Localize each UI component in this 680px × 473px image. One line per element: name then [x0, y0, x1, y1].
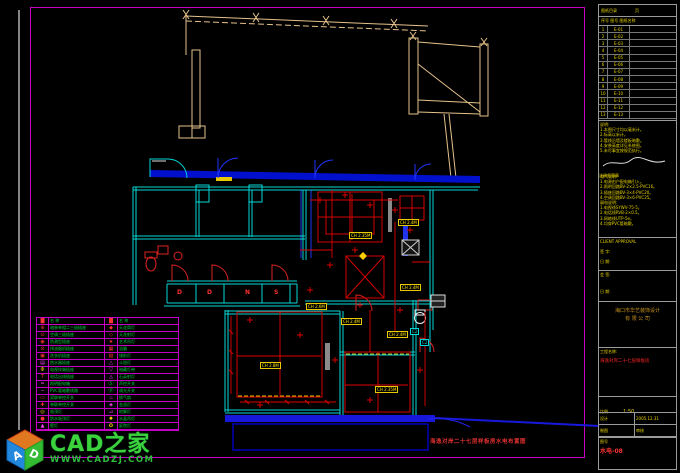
sheet-number: 水电-08 — [600, 446, 675, 455]
rev-col-header: 序号 图号 图纸名称 — [599, 18, 636, 23]
closet-letter: D — [207, 290, 212, 296]
signature-squiggle — [599, 157, 669, 169]
legend-symbol: ═ — [37, 381, 49, 388]
rev-table-row: 12E-12 — [599, 105, 676, 112]
legend-symbol: ◎ — [37, 409, 49, 416]
legend-label: 暗藏灯带 — [118, 367, 178, 374]
cad-canvas: CH 2.35MCH 2.4MCH 2.4MCH 2.8MCH 2.35MCH … — [0, 0, 680, 473]
legend-label: PVC管暗敷线路 — [49, 388, 105, 395]
legend-header-name: 名 称 — [118, 318, 178, 325]
legend-symbol: ⊿ — [105, 409, 118, 416]
sheet-number-box: 图号 水电-08 — [599, 437, 676, 457]
company-name-line2: 有 限 公 司 — [599, 316, 676, 324]
brand-url: WWW.CADZJ.COM — [50, 455, 155, 465]
rev-table-row: 10E-10 — [599, 90, 676, 97]
rev-title: 图纸目录 — [599, 8, 617, 13]
closet-letter: S — [274, 290, 278, 296]
rev-table-row: 7E-07 — [599, 69, 676, 76]
legend-symbol: ▧ — [105, 353, 118, 360]
approval-date-label: 日 期: — [600, 259, 675, 264]
legend-symbol: ▤ — [37, 360, 49, 367]
legend-symbol: ⊕ — [37, 325, 49, 332]
legend-symbol: Φ — [37, 367, 49, 374]
legend-symbol: ⊙ — [37, 332, 49, 339]
notes-block: 说明:1.本图尺寸均以毫米计。2.标高以米计。3.管线沿墙及楼板暗敷。4.安装高… — [599, 120, 676, 154]
legend-label: 斗胆灯 — [118, 360, 178, 367]
legend-label: 热水器插座 — [49, 360, 105, 367]
ceiling-grids — [237, 192, 424, 412]
legend-label: 双联单控开关 — [49, 395, 105, 402]
project-box: 工程名称: 海逸对岸二十七层样板房 — [599, 347, 676, 396]
legend-symbol: ▭ — [37, 395, 49, 402]
ceiling-height-label: CH 2.4M — [398, 219, 419, 226]
legend-symbol: ▽ — [105, 367, 118, 374]
legend-symbol: ⊘ — [37, 346, 49, 353]
legend-label: 金卤灯 — [118, 402, 178, 409]
design-label: 设计 — [599, 413, 635, 425]
ceiling-height-label: CH 2.35M — [375, 386, 398, 393]
legend-label: 换气扇 — [118, 395, 178, 402]
legend-symbol: ◆ — [105, 325, 118, 332]
legend-label: 石英射灯 — [118, 374, 178, 381]
company-box: 海口市华艺装饰设计 有 限 公 司 — [599, 301, 676, 347]
cosign-date-label: 日 期: — [600, 289, 675, 294]
legend-label: 调光开关 — [118, 388, 178, 395]
legend-symbol: ● — [37, 416, 49, 423]
legend-label: 镜前灯 — [118, 353, 178, 360]
ceiling-height-label: CH 2.6M — [306, 303, 327, 310]
signature-block: 注册师签章 — [599, 154, 676, 172]
note-line: 5.未尽事宜按规范执行。 — [600, 148, 675, 153]
legend-label: 吸顶灯 — [49, 409, 105, 416]
legend-symbol: ─ — [37, 388, 49, 395]
logo-text: CAD之家 WWW.CADZJ.COM — [50, 435, 155, 465]
check-label: 审核 — [635, 425, 676, 437]
legend-label: 防水吸顶灯 — [49, 416, 105, 423]
legend-symbol: ♨ — [105, 395, 118, 402]
cosign-label: 会 签: — [600, 272, 675, 277]
company-name-line1: 海口市华艺装饰设计 — [599, 308, 676, 316]
rev-table-row: 8E-08 — [599, 76, 676, 83]
legend-label: 地脚灯 — [118, 409, 178, 416]
rev-table-row: 3E-03 — [599, 40, 676, 47]
legend-label: 空调三极插座 — [49, 332, 105, 339]
legend-label: 暗装单相二三极插座 — [49, 325, 105, 332]
balcony — [225, 415, 600, 450]
legend-header-symbol: █ — [105, 318, 118, 325]
date-cell: 2005.12.31 — [635, 413, 676, 425]
legend-label: 洗衣机插座 — [49, 353, 105, 360]
legend-header-symbol: █ — [37, 318, 49, 325]
cosign-box: 会 签: 日 期: — [599, 270, 676, 301]
approval-sign-label: 签 字: — [600, 249, 675, 254]
legend-symbol: ◬ — [105, 374, 118, 381]
legend-label: 电话出线插座 — [49, 374, 105, 381]
ceiling-height-label: CH 2.4M — [400, 284, 421, 291]
roof-outline — [179, 10, 488, 178]
project-label: 工程名称: — [600, 349, 675, 354]
drawing-title: 海逸对岸二十七层样板房水电布置图 — [430, 437, 526, 445]
legend-label: 防溅型插座 — [49, 339, 105, 346]
scale-box: 比例 1:50 — [599, 396, 676, 412]
ceiling-height-label: CH 2.4M — [387, 331, 408, 338]
rev-table: 1E-012E-023E-034E-045E-056E-067E-078E-08… — [599, 26, 676, 119]
draft-label: 制图 — [599, 425, 635, 437]
legend-label: 水晶吊灯 — [118, 416, 178, 423]
approval-label: CLIENT APPROVAL — [600, 239, 675, 244]
spec-line: 4.均穿PVC管暗敷。 — [600, 221, 675, 226]
c2-label: C2 — [420, 339, 429, 346]
legend-label: 天花射灯 — [118, 332, 178, 339]
legend-symbol: ✹ — [105, 416, 118, 423]
legend-table: █ 名 称 █ 名 称 ⊕暗装单相二三极插座◆天花筒灯⊙空调三极插座◇天花射灯◉… — [36, 317, 179, 431]
legend-label: 排油烟机插座 — [49, 346, 105, 353]
legend-label: 天花筒灯 — [118, 325, 178, 332]
ceiling-height-label: CH 2.8M — [260, 362, 281, 369]
rev-page: 页 — [635, 8, 639, 13]
spec-notes-block: 电气说明:1.电源由户配电箱引入。2.照明回路BV-2×2.5-PVC16。3.… — [599, 173, 676, 237]
rev-table-row: 9E-09 — [599, 83, 676, 90]
legend-label: 艺术吊灯 — [118, 339, 178, 346]
legend-symbol: ▦ — [105, 346, 118, 353]
ceiling-height-label: CH 2.4M — [341, 318, 362, 325]
sheet-label: 图号 — [600, 439, 675, 444]
legend-symbol: ★ — [105, 339, 118, 346]
rev-table-row: 13E-13 — [599, 112, 676, 119]
c2-label: C2 — [410, 328, 419, 335]
legend-symbol: ▣ — [37, 353, 49, 360]
rev-table-row: 2E-02 — [599, 33, 676, 40]
legend-label: 照明配电箱 — [49, 381, 105, 388]
legend-symbol: ◇ — [105, 332, 118, 339]
legend-symbol: Ⓓ — [105, 388, 118, 395]
rev-table-row: 4E-04 — [599, 47, 676, 54]
rev-table-row: 5E-05 — [599, 55, 676, 62]
legend-label: 单联单控开关 — [49, 402, 105, 409]
legend-label: 声控开关 — [118, 381, 178, 388]
rev-table-row: 1E-01 — [599, 26, 676, 33]
legend-label: 电视终端插座 — [49, 367, 105, 374]
legend-symbol: T — [37, 374, 49, 381]
legend-symbol: △ — [105, 360, 118, 367]
closet-letter: N — [245, 290, 250, 296]
project-name: 海逸对岸二十七层样板房 — [600, 358, 675, 364]
cube-logo-icon: A D — [4, 428, 46, 472]
staff-cells: 设计 2005.12.31 制图 审核 — [599, 412, 676, 437]
brand-name: CAD之家 — [50, 435, 155, 455]
legend-symbol: ◈ — [105, 402, 118, 409]
legend-label: 浴霸 — [118, 346, 178, 353]
title-block: 图纸目录 页 序号 图号 图纸名称 1E-012E-023E-034E-045E… — [598, 4, 677, 470]
closet-letter: D — [177, 290, 182, 296]
ceiling-height-label: CH 2.35M — [349, 232, 372, 239]
legend-symbol: ◉ — [37, 339, 49, 346]
watermark-logo: A D CAD之家 WWW.CADZJ.COM — [4, 428, 155, 472]
legend-symbol: ✚ — [37, 402, 49, 409]
legend-symbol: Ⓢ — [105, 381, 118, 388]
legend-header-name: 名 称 — [49, 318, 105, 325]
rev-table-row: 6E-06 — [599, 62, 676, 69]
rev-table-row: 11E-11 — [599, 98, 676, 105]
approval-box: CLIENT APPROVAL 签 字: 日 期: — [599, 237, 676, 270]
